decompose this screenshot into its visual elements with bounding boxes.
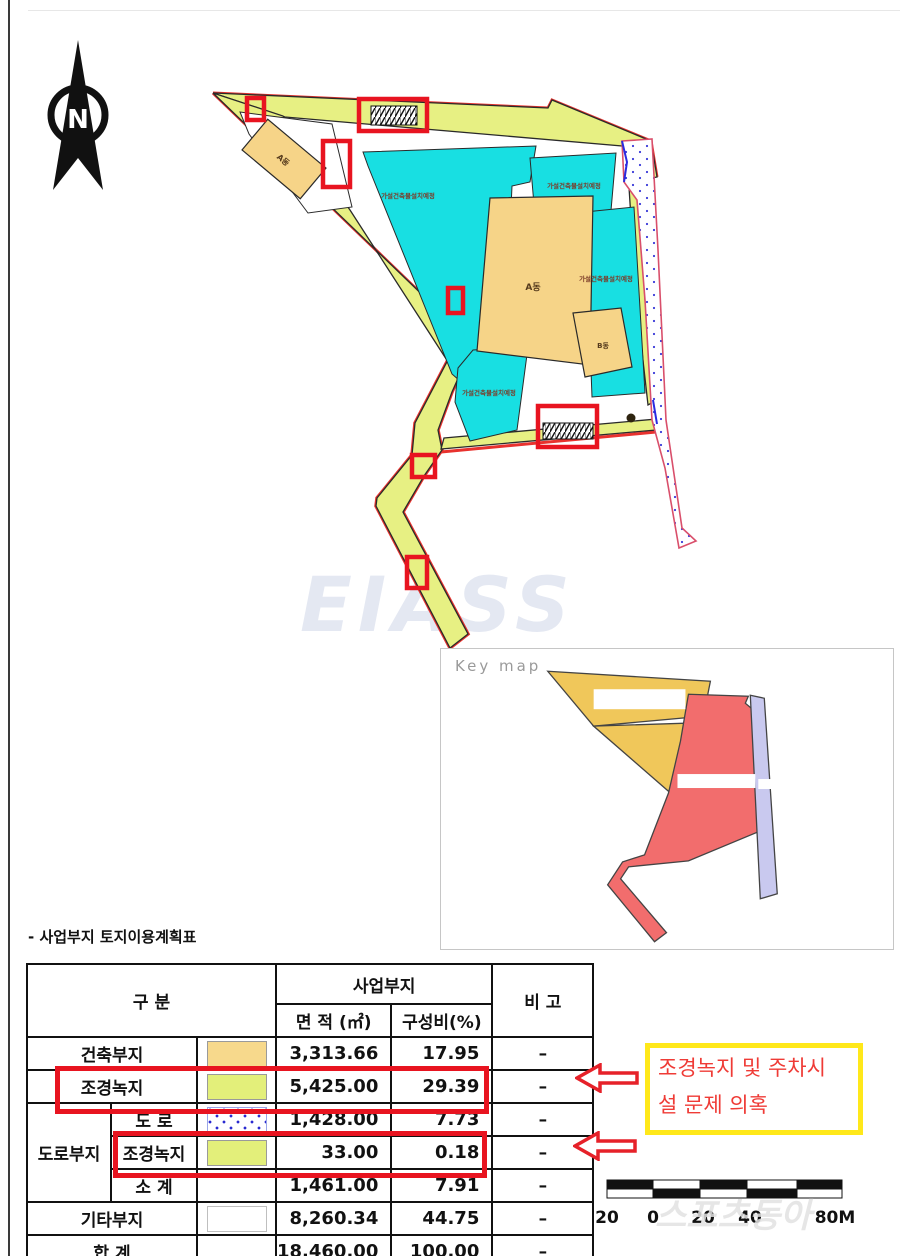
row-label: 합 계	[27, 1235, 197, 1256]
swatch-other	[207, 1206, 267, 1232]
row-group-label: 도로부지	[27, 1103, 111, 1202]
row-swatch-cell	[197, 1235, 276, 1256]
site-plan-map: 가설건축물설치예정 가설건축물설치예정 가설건축물설치예정 가설건축물설치예정 …	[200, 85, 710, 660]
area-label-3: 가설건축물설치예정	[579, 274, 633, 283]
scale-bar: 20 0 20 40 80M 스포츠동아	[595, 1175, 875, 1237]
swatch-building	[207, 1041, 267, 1067]
building-a-main	[477, 196, 593, 365]
header-area: 면 적 (㎡)	[276, 1004, 391, 1037]
north-label: N	[67, 105, 89, 135]
scale-label-0: 20	[595, 1208, 619, 1228]
area-label-2: 가설건축물설치예정	[547, 181, 601, 190]
green-lower-mass	[376, 333, 468, 648]
area-label-4: 가설건축물설치예정	[462, 388, 516, 397]
row-area: 18,460.00	[276, 1235, 391, 1256]
row-ratio: 100.00	[391, 1235, 492, 1256]
row-area: 8,260.34	[276, 1202, 391, 1235]
keymap-panel: Key map	[440, 648, 894, 950]
site-marker-dot	[627, 414, 636, 423]
row-note: –	[492, 1169, 593, 1202]
table-row: 기타부지 8,260.34 44.75 –	[27, 1202, 593, 1235]
header-ratio: 구성비(%)	[391, 1004, 492, 1037]
header-site: 사업부지	[276, 964, 492, 1004]
row-ratio: 44.75	[391, 1202, 492, 1235]
keymap-label: Key map	[455, 657, 541, 675]
header-gubun: 구 분	[27, 964, 276, 1037]
table-highlight-row-landscape	[55, 1066, 489, 1114]
annotation-line1: 조경녹지 및 주차시	[658, 1050, 850, 1087]
parking-hatch-lower	[543, 423, 593, 439]
scale-label-4: 80M	[815, 1208, 856, 1228]
highlight-arrow-1	[575, 1063, 639, 1093]
keymap-drawing	[441, 649, 893, 949]
building-b-label: B동	[597, 342, 609, 350]
table-highlight-row-road-landscape	[113, 1131, 487, 1178]
parking-hatch-top	[371, 106, 417, 125]
document-page: N EIASS	[0, 0, 900, 1256]
highlight-arrow-2	[573, 1131, 637, 1161]
page-left-rule	[8, 0, 10, 1256]
building-a-main-label: A동	[525, 282, 540, 293]
press-watermark: 스포츠동아	[655, 1196, 816, 1236]
table-title: - 사업부지 토지이용계획표	[28, 926, 196, 947]
annotation-line2: 설 문제 의혹	[658, 1087, 850, 1124]
row-note: –	[492, 1235, 593, 1256]
row-label: 기타부지	[27, 1202, 197, 1235]
header-note: 비 고	[492, 964, 593, 1037]
table-row: 합 계 18,460.00 100.00 –	[27, 1235, 593, 1256]
row-note: –	[492, 1202, 593, 1235]
annotation-box: 조경녹지 및 주차시 설 문제 의혹	[645, 1043, 863, 1135]
row-swatch-cell	[197, 1202, 276, 1235]
page-top-rule	[28, 10, 900, 11]
north-arrow-icon: N	[45, 28, 115, 198]
area-label-1: 가설건축물설치예정	[381, 191, 435, 200]
